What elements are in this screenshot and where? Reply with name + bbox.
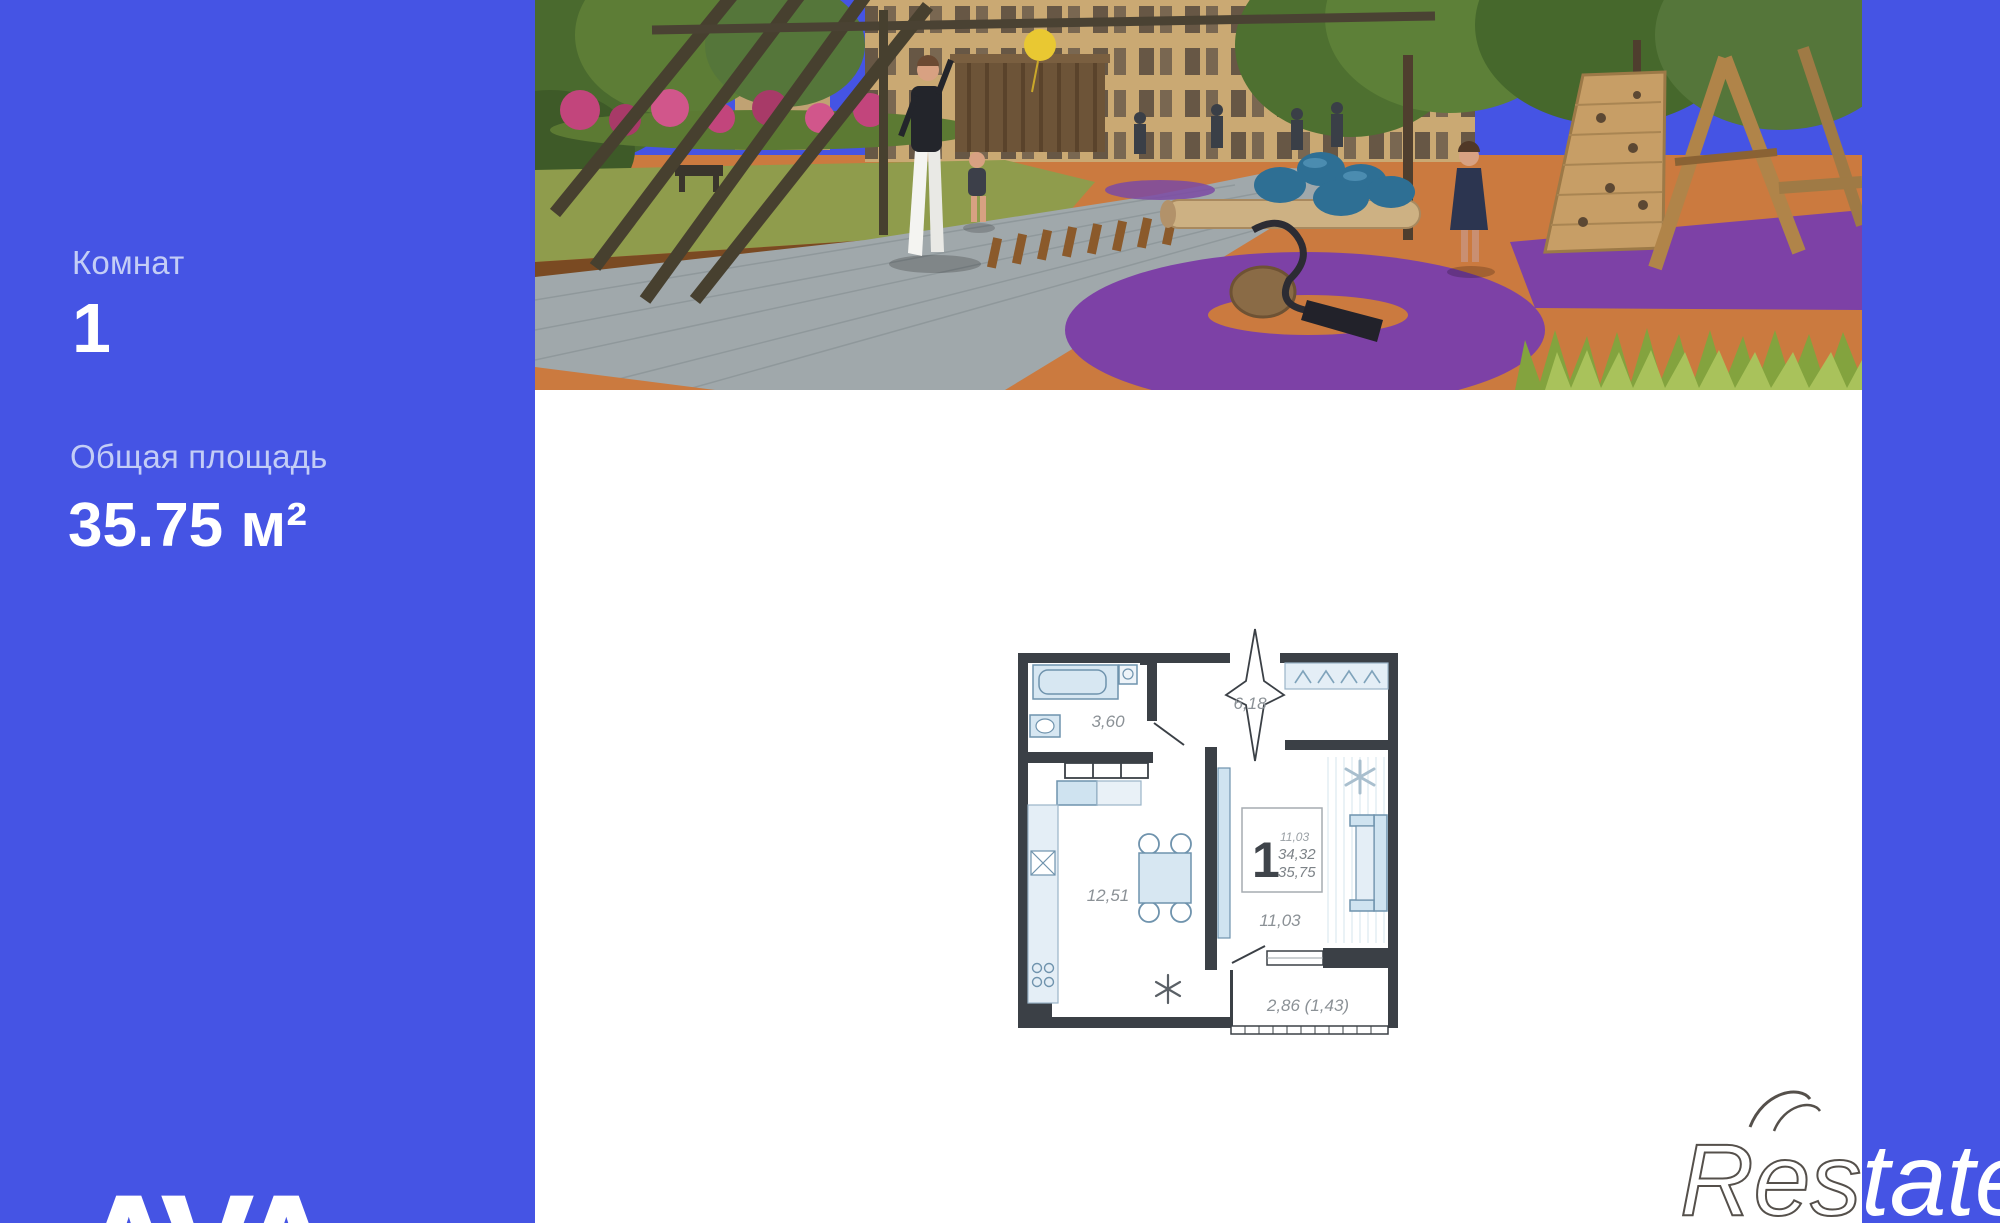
kitchen-area-label: 12,51 (1087, 886, 1130, 905)
sidebar: Комнат 1 Общая площадь 35.75 м² AVA (0, 0, 535, 1223)
plan-rooms-count: 1 (1252, 832, 1280, 888)
rooms-value: 1 (72, 288, 111, 368)
ava-logo: AVA (80, 1176, 330, 1223)
restate-watermark-art: Restate (1672, 1085, 2000, 1223)
watermark-res: Res (1680, 1123, 1861, 1223)
svg-text:Restate: Restate (1680, 1123, 2000, 1223)
bathroom-area-label: 3,60 (1091, 712, 1125, 731)
playground-photo (535, 0, 1862, 390)
plan-living-area: 11,03 (1280, 830, 1309, 844)
floor-plan: 1 11,03 34,32 35,75 3,60 6,18 12,51 11,0… (1018, 621, 1398, 1035)
playground-photo-art (535, 0, 1862, 390)
floor-plan-drawing: 1 11,03 34,32 35,75 3,60 6,18 12,51 11,0… (1018, 621, 1398, 1035)
room-area-label: 11,03 (1259, 911, 1301, 930)
plan-area-no-balcony: 34,32 (1278, 846, 1316, 863)
total-area-value: 35.75 м² (68, 490, 307, 561)
rooms-label: Комнат (72, 244, 184, 282)
listing-card: Комнат 1 Общая площадь 35.75 м² AVA (0, 0, 2000, 1223)
restate-watermark: Restate (1672, 1085, 2000, 1223)
hallway-area-label: 6,18 (1233, 694, 1267, 713)
total-area-label: Общая площадь (70, 438, 328, 476)
watermark-tate: tate (1861, 1123, 2000, 1223)
balcony-area-label: 2,86 (1,43) (1266, 996, 1349, 1015)
plan-total-area: 35,75 (1278, 864, 1316, 881)
